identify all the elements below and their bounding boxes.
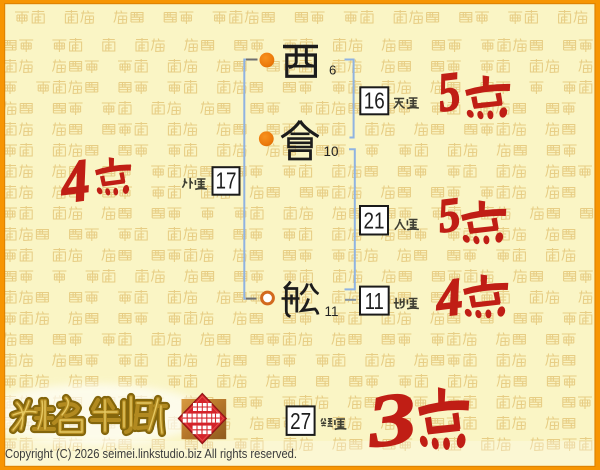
svg-text:11: 11 (365, 288, 384, 314)
svg-text:16: 16 (364, 88, 385, 114)
svg-text:27: 27 (290, 408, 311, 434)
svg-text:11: 11 (325, 304, 339, 319)
svg-text:Copyright (C) 2026 seimei.link: Copyright (C) 2026 seimei.linkstudio.biz… (5, 446, 297, 461)
svg-text:4: 4 (56, 147, 93, 216)
svg-text:17: 17 (216, 168, 237, 194)
svg-text:6: 6 (329, 63, 336, 78)
svg-text:4: 4 (432, 268, 466, 329)
svg-text:21: 21 (364, 208, 385, 234)
svg-text:10: 10 (324, 144, 339, 159)
svg-text:3: 3 (362, 377, 421, 464)
svg-text:5: 5 (435, 188, 463, 243)
